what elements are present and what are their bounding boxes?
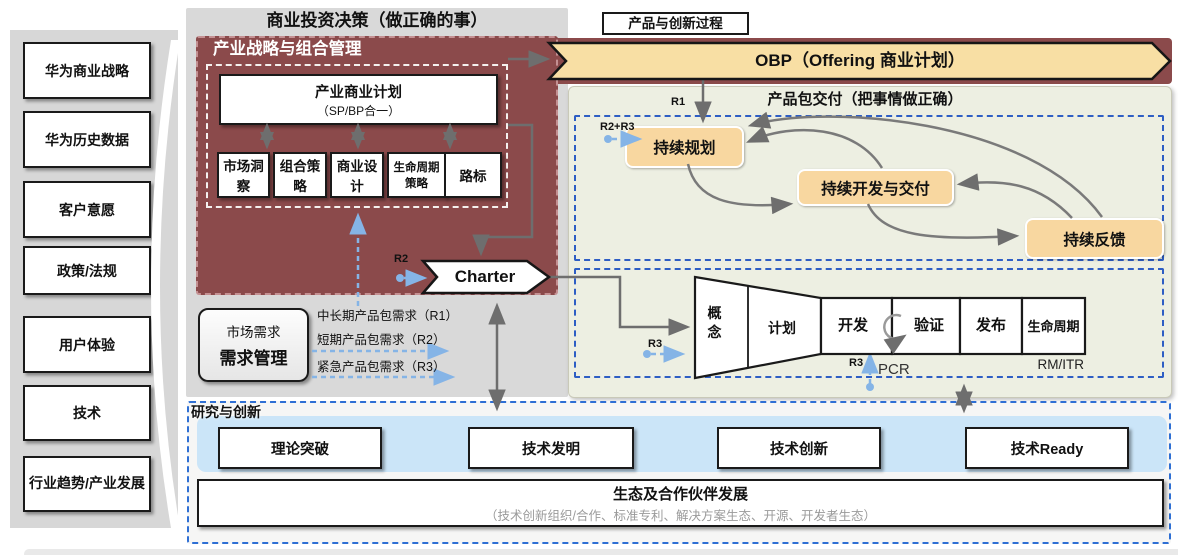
stage-label-release: 发布 — [960, 317, 1022, 335]
r2r3-dot — [604, 135, 612, 143]
strategy-to-charter-arrow — [481, 125, 532, 252]
requirement-line-r1: 中长期产品包需求（R1） — [317, 309, 458, 323]
funnel-stage-plan: 计划 — [756, 319, 808, 337]
process-tag: 产品与创新过程 — [602, 12, 749, 35]
research-panel-title: 研究与创新 — [191, 404, 261, 420]
pcr-dot — [866, 383, 874, 391]
dev-to-feedback-curve — [868, 204, 1015, 238]
stage-label-develop: 开发 — [821, 317, 885, 335]
r3-pcr-label: R3 — [849, 357, 863, 370]
feedback-to-dev-curve — [961, 182, 1072, 218]
requirement-line-r2: 短期产品包需求（R2） — [317, 333, 445, 347]
planning-to-dev-curve — [688, 164, 789, 205]
charter-to-funnel-arrow — [549, 277, 686, 327]
strategy-panel-title: 产业战略与组合管理 — [213, 40, 362, 59]
r2r3-label: R2+R3 — [600, 121, 635, 134]
stage-label-lifecycle: 生命周期 — [1024, 308, 1083, 346]
r1-label: R1 — [671, 96, 685, 109]
pcr-label: PCR — [878, 361, 910, 378]
feedback-to-planning-curve — [752, 117, 1102, 217]
diagram-canvas: 华为商业战略 华为历史数据 客户意愿 政策/法规 用户体验 技术 行业趋势/产业… — [0, 0, 1178, 555]
stage-label-verify: 验证 — [898, 317, 960, 335]
sidebar-crescent-divider — [151, 40, 180, 528]
rm-itr-label: RM/ITR — [1026, 357, 1084, 373]
obp-label: OBP（Offering 商业计划） — [600, 50, 1120, 72]
page-title: 商业投资决策（做正确的事） — [186, 10, 568, 32]
delivery-panel-title: 产品包交付（把事情做正确） — [700, 90, 1030, 110]
connector-layer — [0, 0, 1178, 555]
funnel-stage-concept: 概念 — [706, 304, 723, 342]
requirement-line-r3: 紧急产品包需求（R3） — [317, 360, 445, 374]
dev-to-planning-curve — [750, 130, 882, 168]
r3-funnel-label: R3 — [648, 338, 662, 351]
r2-label: R2 — [394, 253, 408, 266]
r3-funnel-dot — [643, 350, 651, 358]
charter-label: Charter — [433, 266, 537, 288]
r2-charter-dot — [396, 274, 404, 282]
